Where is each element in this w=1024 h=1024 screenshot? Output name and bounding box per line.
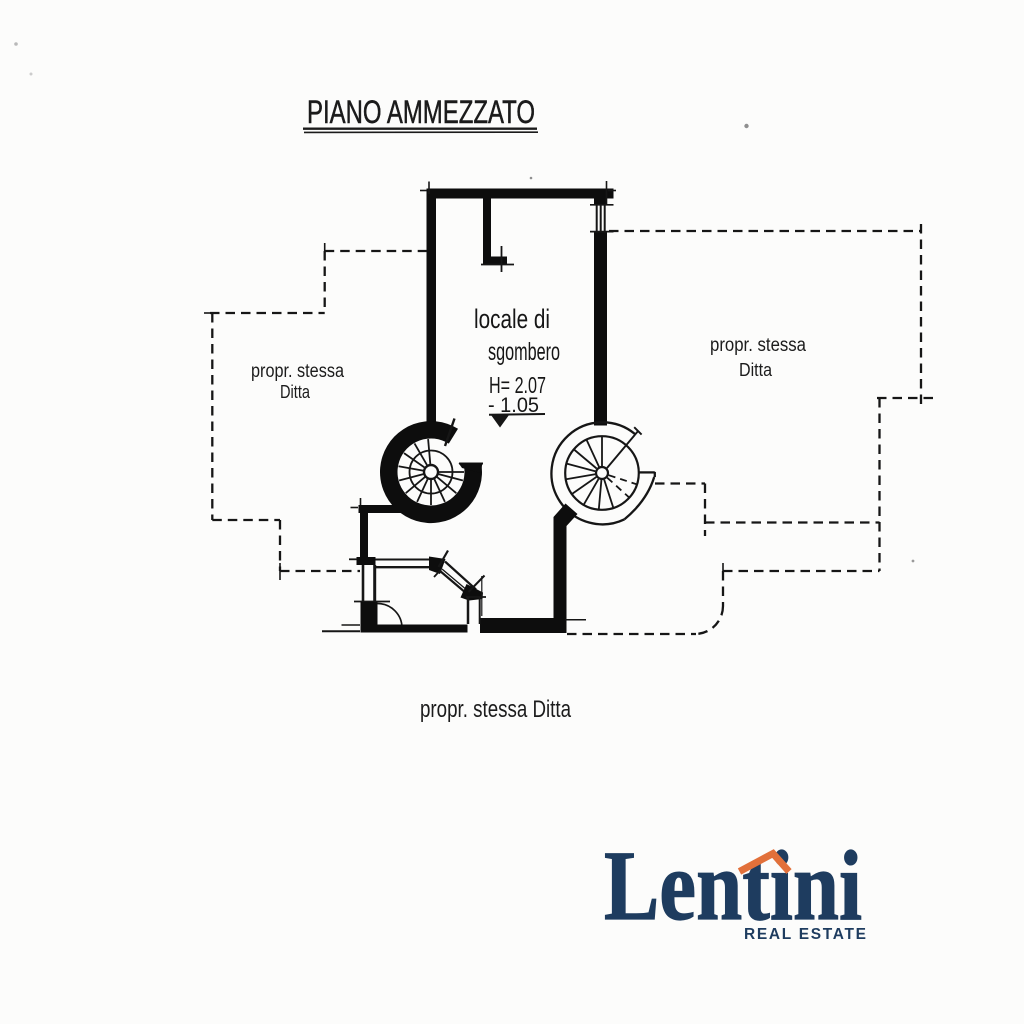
svg-text:propr. stessa: propr. stessa bbox=[710, 335, 806, 356]
svg-text:REAL ESTATE: REAL ESTATE bbox=[744, 926, 866, 943]
svg-text:propr. stessa: propr. stessa bbox=[251, 361, 344, 382]
svg-text:Lentini: Lentini bbox=[604, 830, 862, 941]
svg-text:locale di: locale di bbox=[474, 304, 550, 334]
svg-text:Ditta: Ditta bbox=[280, 382, 311, 402]
svg-text:Ditta: Ditta bbox=[739, 360, 773, 380]
svg-text:propr. stessa Ditta: propr. stessa Ditta bbox=[420, 696, 572, 723]
svg-text:PIANO AMMEZZATO: PIANO AMMEZZATO bbox=[307, 94, 535, 130]
svg-text:sgombero: sgombero bbox=[488, 338, 560, 366]
